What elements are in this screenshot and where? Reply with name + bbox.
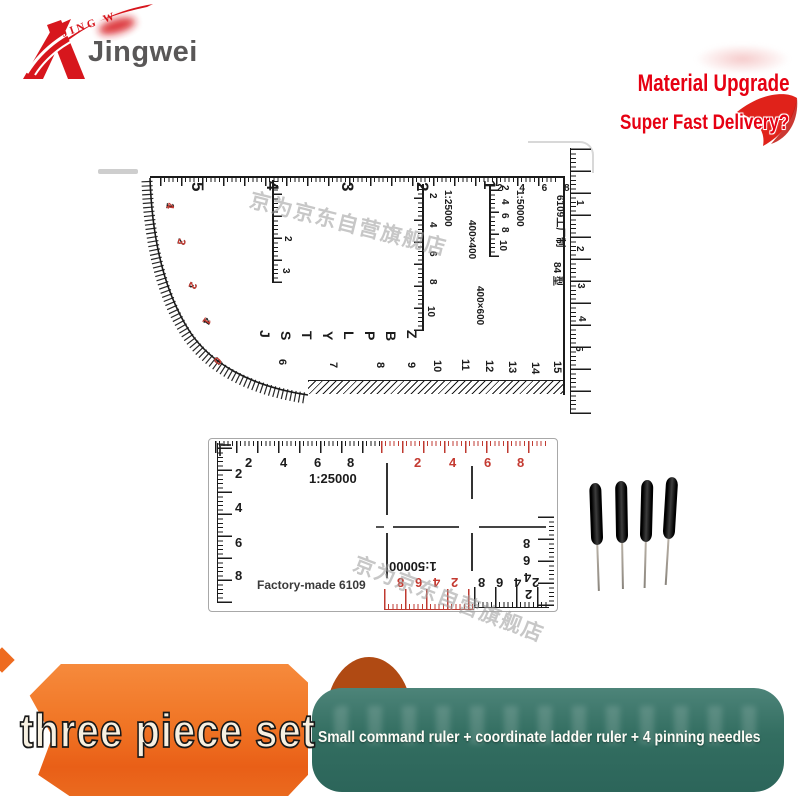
promo-subtitle: Super Fast Delivery?: [620, 111, 789, 135]
brand-name: Jingwei: [88, 36, 198, 69]
top-small-numbers: 2 4 6 8: [497, 183, 577, 194]
scale-25000-size: 400×600: [474, 286, 484, 325]
cross-v2: [471, 466, 473, 499]
factory-made-label: Factory-made 6109: [257, 578, 366, 592]
right-ticks: [538, 516, 554, 606]
scale-number: 6: [484, 456, 491, 469]
needle: [589, 483, 605, 591]
needle-handle: [589, 483, 603, 545]
banner-corner-triangle: [0, 647, 15, 672]
needle-pin: [644, 542, 647, 588]
scale-number: 10: [431, 360, 442, 372]
ruler-letter: L: [342, 331, 356, 340]
scale-number: 14: [529, 362, 540, 374]
needle: [639, 480, 654, 588]
scale-number: 4: [524, 571, 531, 584]
scale-number: 2: [414, 456, 421, 469]
scale-number: 8: [517, 456, 524, 469]
ruler-letter: Z: [405, 330, 419, 339]
needle-handle: [663, 477, 679, 540]
scale-number: 8: [523, 537, 530, 550]
scale-number: 4: [235, 501, 242, 514]
scale-number: 4: [449, 456, 456, 469]
scale-label-25000: 1:25000: [309, 471, 357, 486]
edge-strip-ticks: [571, 148, 591, 414]
scale-number: 2: [427, 193, 437, 199]
ruler-letter: B: [384, 331, 398, 341]
scale-number: 4: [280, 456, 287, 469]
cross-v1: [386, 463, 388, 515]
scale-number: 8: [427, 279, 437, 285]
scale-25000-ticks: [414, 184, 423, 331]
scale-number: 2: [245, 456, 252, 469]
needle: [615, 481, 629, 589]
scale-number: 15: [551, 361, 562, 373]
scale-50000-size: 400×400: [466, 220, 476, 259]
scale-number: 4: [499, 199, 509, 205]
scale-50000-label: 1:50000: [514, 190, 524, 227]
scale-number: 10: [425, 306, 435, 317]
scale-number: 13: [506, 361, 517, 373]
cross-h2: [479, 526, 546, 528]
needle-pin: [596, 545, 600, 591]
command-ruler: 54321 2 4 6 8 1423324150 23 246810 1:250…: [112, 140, 604, 430]
scale-50000-ticks: [490, 184, 499, 257]
scale-number: 8: [374, 362, 385, 368]
model-mark-cn: 84 型: [551, 262, 561, 286]
ruler-letter: P: [363, 331, 377, 340]
cross-v2b: [471, 533, 473, 571]
factory-mark-cn: 6109工厂制: [554, 195, 564, 247]
needle: [660, 477, 679, 586]
top-ticks-black: [215, 441, 381, 453]
cross-h1: [393, 526, 459, 528]
scale-number: 6: [314, 456, 321, 469]
needle-handle: [615, 481, 628, 543]
product-image: JING W Jingwei Material Upgrade Super Fa…: [0, 0, 800, 800]
needle-pin: [621, 543, 624, 589]
scale-number: 2: [235, 467, 242, 480]
scale-25000-label: 1:25000: [442, 190, 452, 227]
banner-subtitle: Small command ruler + coordinate ladder …: [318, 729, 760, 747]
scale-number: 11: [459, 359, 470, 371]
top-ticks-red: [381, 441, 547, 453]
scale-number: 8: [235, 569, 242, 582]
ladder-ticks: [218, 443, 232, 603]
scale-number: 6: [499, 213, 509, 219]
cross-h-stub: [376, 526, 384, 528]
scale-number: 9: [405, 362, 416, 368]
scale-number: 8: [499, 227, 509, 233]
scale-number: 8: [347, 456, 354, 469]
bottom-hatch-edge: [308, 380, 563, 394]
banner-title: three piece set: [20, 703, 316, 758]
scale-number: 6: [523, 554, 530, 567]
scale-number: 6: [235, 536, 242, 549]
needle-handle: [640, 480, 654, 542]
needle-pin: [665, 539, 670, 585]
scale-number: 12: [483, 360, 494, 372]
